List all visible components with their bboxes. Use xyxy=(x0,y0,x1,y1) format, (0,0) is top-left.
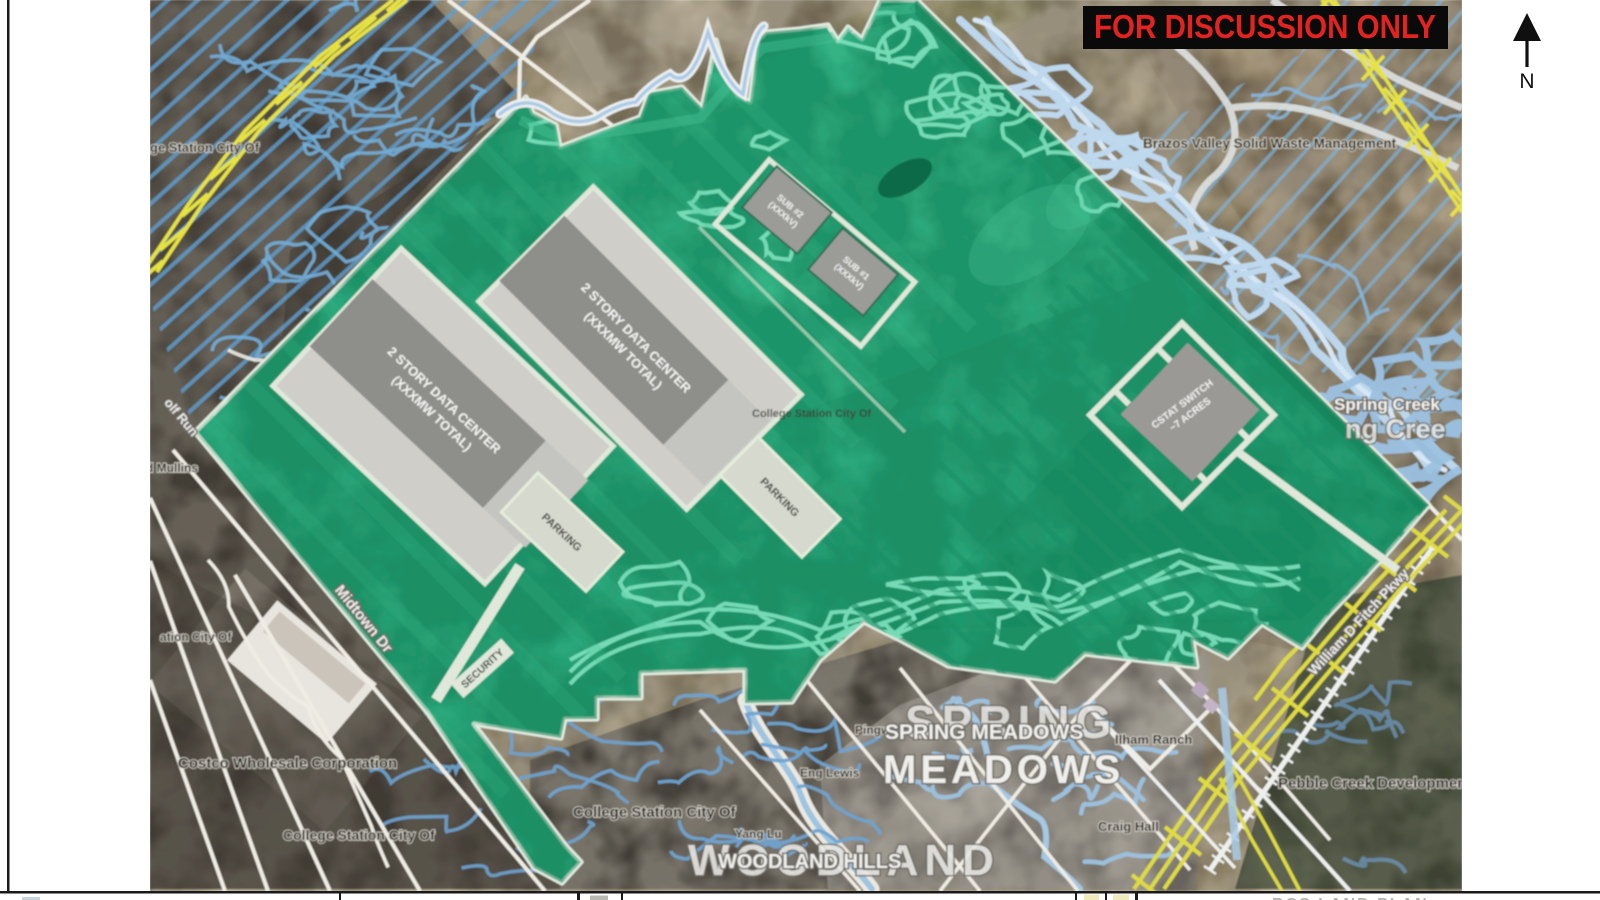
svg-text:ation City Of: ation City Of xyxy=(160,630,232,644)
svg-text:Costco Wholesale Corporation: Costco Wholesale Corporation xyxy=(178,755,397,772)
svg-text:FOR DISCUSSION ONLY: FOR DISCUSSION ONLY xyxy=(1094,8,1436,45)
svg-text:WOODLAND HILLS: WOODLAND HILLS xyxy=(718,851,901,873)
svg-text:Ilham Ranch: Ilham Ranch xyxy=(1115,732,1192,747)
svg-text:N: N xyxy=(1519,70,1534,93)
svg-text:SPRING MEADOWS: SPRING MEADOWS xyxy=(885,721,1083,744)
svg-text:d Mullins: d Mullins xyxy=(146,461,198,475)
svg-text:College Station City Of: College Station City Of xyxy=(573,804,737,821)
svg-text:College Station City Of: College Station City Of xyxy=(283,827,435,843)
svg-text:Eng Lewis: Eng Lewis xyxy=(800,766,860,780)
svg-text:ng Cree: ng Cree xyxy=(1345,414,1446,444)
svg-text:College Station City Of: College Station City Of xyxy=(752,408,872,420)
svg-text:ge Station City Of: ge Station City Of xyxy=(150,140,260,155)
svg-text:Craig Hall: Craig Hall xyxy=(1098,819,1159,834)
svg-text:Pebble Creek Development: Pebble Creek Development xyxy=(1278,775,1471,792)
svg-text:BCS LAND PLAN: BCS LAND PLAN xyxy=(1272,896,1429,900)
svg-text:MEADOWS: MEADOWS xyxy=(883,748,1124,792)
svg-text:Brazos Valley Solid Waste Mana: Brazos Valley Solid Waste Management xyxy=(1143,136,1397,151)
svg-text:Spring Creek: Spring Creek xyxy=(1334,395,1440,414)
